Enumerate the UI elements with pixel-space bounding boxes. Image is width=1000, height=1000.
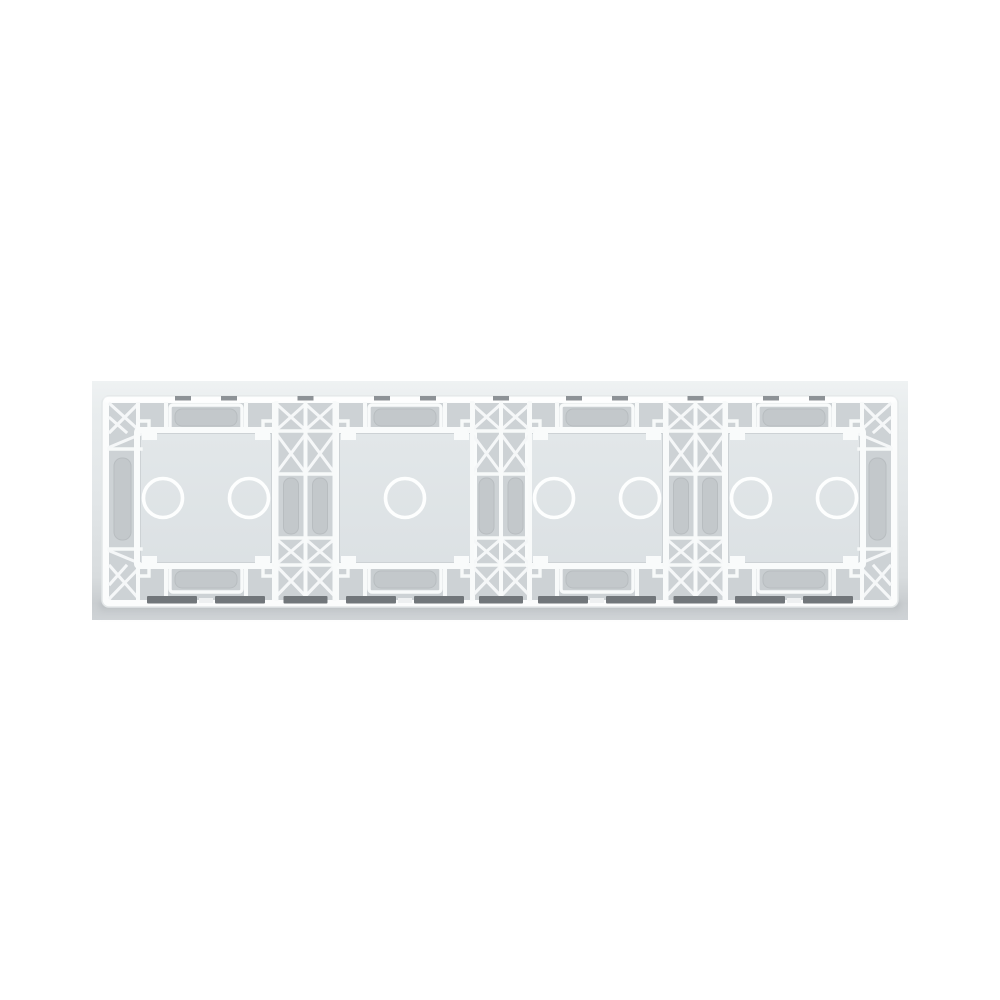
glass-window-1	[141, 434, 271, 562]
glass-window-3	[532, 434, 662, 562]
panel-photo-svg	[0, 0, 1000, 1000]
glass-window-4	[729, 434, 859, 562]
product-photo	[0, 0, 1000, 1000]
glass-window-2	[340, 434, 470, 562]
